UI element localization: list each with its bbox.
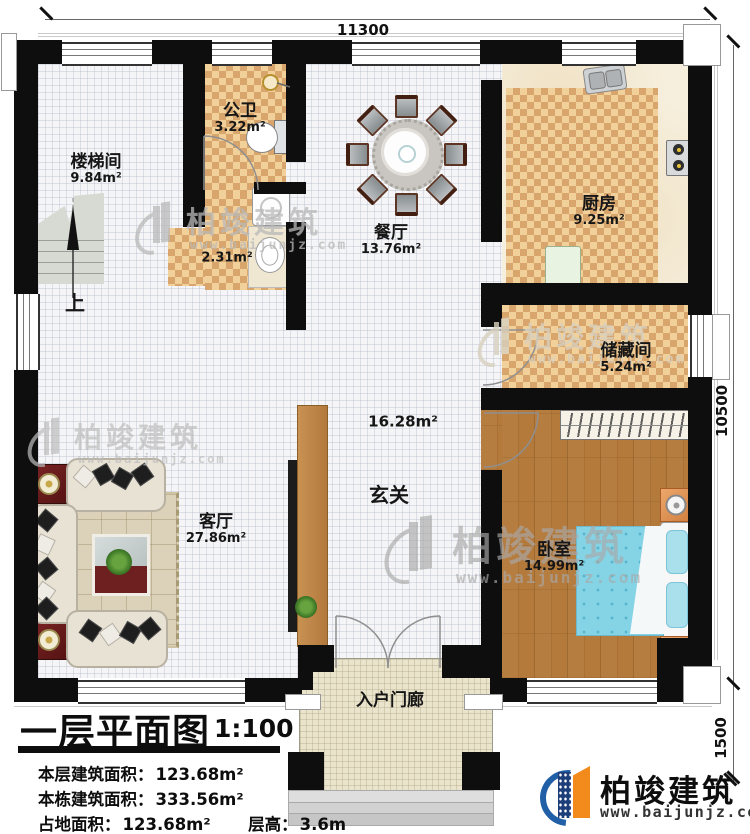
room-label-storage: 储藏间 5.24m²	[600, 342, 651, 376]
watermark: 柏竣建筑 www.baijunjz.com	[30, 416, 250, 470]
stat-footprint-and-height: 占地面积：123.68m² 层高：3.6m	[38, 811, 346, 834]
shower-hose-icon	[277, 83, 290, 87]
stairs-up-label: 上	[65, 292, 85, 314]
dimension-line-top	[45, 19, 710, 20]
dimension-right-lower-label: 1500	[712, 708, 730, 768]
room-label-foyer: 玄关	[369, 484, 409, 506]
plan-scale: 1:100	[214, 714, 294, 743]
dimension-line-right-upper	[733, 45, 734, 689]
stat-building-area: 本栋建筑面积：333.56m²	[38, 786, 244, 810]
watermark-logo-icon	[138, 202, 178, 254]
logo-building-blue-icon	[558, 772, 571, 818]
room-label-dining: 餐厅 13.76m²	[361, 224, 421, 258]
room-label-bathroom: 公卫 3.22m²	[214, 102, 265, 136]
stat-floor-area: 本层建筑面积：123.68m²	[38, 761, 244, 785]
floor-plan-canvas: 楼梯间 9.84m² 公卫 3.22m² 2.31m² 餐厅 13.76m² 厨…	[0, 0, 750, 834]
title-underline	[18, 746, 280, 753]
dimension-right-upper-label: 10500	[713, 381, 731, 441]
entry-door-left-arc	[336, 616, 388, 668]
watermark-logo-icon	[30, 418, 66, 466]
watermark-logo-icon	[388, 516, 444, 586]
brand-url: www.baijunjz.com	[600, 803, 750, 821]
room-label-kitchen: 厨房 9.25m²	[573, 195, 624, 229]
watermark-logo-icon	[480, 318, 516, 366]
foyer-area-label: 16.28m²	[368, 414, 438, 431]
room-label-porch: 入户门廊	[356, 691, 424, 710]
brand-logo-icon	[540, 762, 598, 822]
stair-up-arrow-icon	[67, 206, 79, 250]
bathroom-door-arc	[204, 136, 258, 190]
room-label-stairwell: 楼梯间 9.84m²	[70, 153, 121, 187]
entry-door-right-arc	[388, 616, 440, 668]
room-label-bedroom: 卧室 14.99m²	[524, 541, 584, 575]
bedroom-door-arc	[484, 413, 538, 467]
room-label-laundry: 2.31m²	[201, 252, 252, 267]
room-label-living: 客厅 27.86m²	[186, 513, 246, 547]
dimension-top-label: 11300	[333, 21, 393, 39]
